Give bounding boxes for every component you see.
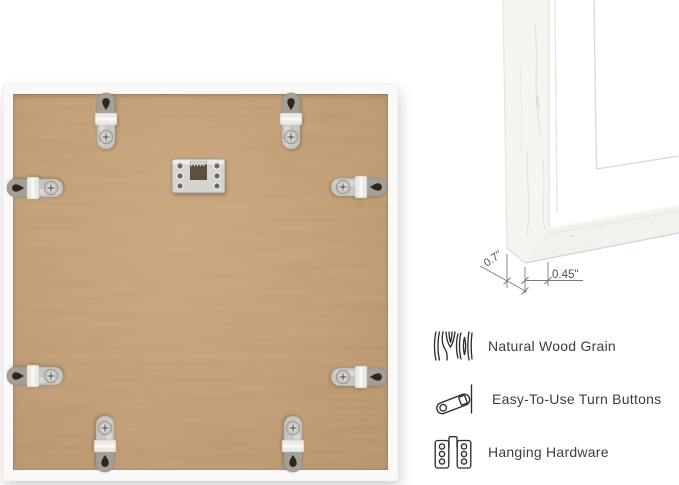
feature-wood-grain: Natural Wood Grain xyxy=(433,329,673,363)
feature-turn-buttons: Easy-To-Use Turn Buttons xyxy=(433,382,673,416)
frame-back-view xyxy=(3,84,398,481)
turn-button-hardware xyxy=(330,175,388,199)
turn-button-hardware xyxy=(279,92,303,150)
sawtooth-hanger-hardware xyxy=(170,155,227,196)
mdf-texture xyxy=(13,94,388,470)
turn-button-hardware xyxy=(330,365,388,389)
turn-button-hardware xyxy=(281,415,305,473)
turn-button-icon xyxy=(433,382,477,416)
wood-grain-icon xyxy=(433,331,473,361)
frame-corner-dimension-diagram: 0.7" 0.45" xyxy=(440,0,679,320)
turn-button-hardware xyxy=(93,415,117,473)
feature-hanging-hardware: Hanging Hardware xyxy=(433,435,673,469)
feature-list: Natural Wood Grain Easy-To-Use Turn Butt… xyxy=(433,329,673,485)
feature-label: Natural Wood Grain xyxy=(488,338,616,354)
dimension-depth-label: 0.45" xyxy=(552,269,578,281)
hanging-hardware-icon xyxy=(433,434,473,470)
product-image: 0.7" 0.45" xyxy=(0,0,679,485)
turn-button-hardware xyxy=(6,364,64,388)
feature-label: Easy-To-Use Turn Buttons xyxy=(492,391,661,407)
turn-button-hardware xyxy=(94,92,118,150)
mdf-backing-board xyxy=(13,94,388,470)
turn-button-hardware xyxy=(6,176,64,200)
dimension-side-label: 0.7" xyxy=(482,249,505,270)
feature-label: Hanging Hardware xyxy=(488,444,609,460)
